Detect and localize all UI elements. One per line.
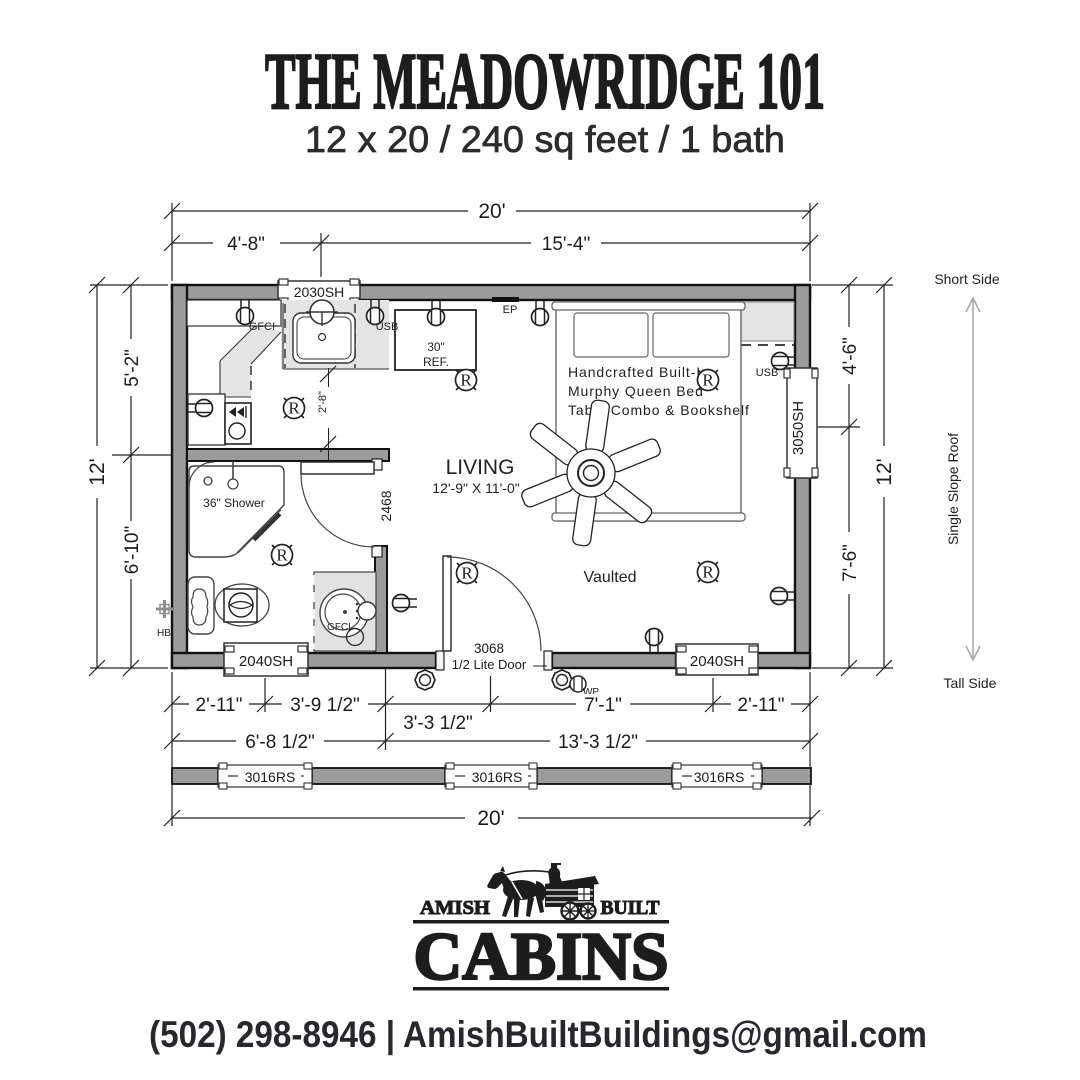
svg-text:3068: 3068 [474,641,504,656]
svg-text:12': 12' [86,458,109,485]
svg-text:HB: HB [157,628,171,639]
svg-text:15'-4": 15'-4" [542,234,590,255]
svg-text:AMISH: AMISH [420,897,490,919]
svg-text:1/2 Lite Door: 1/2 Lite Door [452,657,527,672]
svg-text:7'-1": 7'-1" [584,695,622,716]
svg-text:12 x 20 / 240 sq feet / 1 bath: 12 x 20 / 240 sq feet / 1 bath [305,119,785,160]
svg-text:Short Side: Short Side [934,271,1000,287]
svg-text:7'-6": 7'-6" [840,544,861,582]
svg-text:EP: EP [503,304,518,316]
svg-text:3016RS: 3016RS [472,769,523,785]
svg-text:2'-11": 2'-11" [196,695,243,716]
svg-text:LIVING: LIVING [446,456,515,479]
svg-text:30": 30" [427,340,445,354]
svg-text:2030SH: 2030SH [294,284,345,300]
svg-text:Handcrafted Built-In: Handcrafted Built-In [568,364,710,380]
svg-text:12'-9" X 11'-0": 12'-9" X 11'-0" [432,480,519,496]
svg-text:36" Shower: 36" Shower [203,496,265,510]
svg-text:13'-3 1/2": 13'-3 1/2" [558,732,638,753]
svg-text:3'-9 1/2": 3'-9 1/2" [290,695,360,716]
svg-text:2'-8": 2'-8" [317,391,329,413]
svg-text:Single Slope Roof: Single Slope Roof [945,433,961,545]
svg-text:4'-8": 4'-8" [227,234,265,255]
svg-text:BUILT: BUILT [601,897,661,919]
svg-text:2'-11": 2'-11" [738,695,785,716]
svg-text:20': 20' [477,807,504,830]
svg-text:3'-3 1/2": 3'-3 1/2" [403,713,473,734]
svg-text:USB: USB [756,367,779,379]
svg-text:4'-6": 4'-6" [840,337,861,375]
svg-text:Murphy Queen Bed: Murphy Queen Bed [568,383,704,399]
svg-text:20': 20' [478,200,505,223]
svg-text:Vaulted: Vaulted [583,569,636,586]
svg-text:2040SH: 2040SH [239,653,293,670]
svg-text:6'-10": 6'-10" [122,526,143,574]
svg-text:3016RS: 3016RS [245,769,296,785]
svg-text:3016RS: 3016RS [694,769,745,785]
svg-text:3050SH: 3050SH [790,401,807,455]
svg-text:(502) 298-8946 | AmishBuiltBui: (502) 298-8946 | AmishBuiltBuildings@gma… [149,1014,927,1056]
svg-text:2468: 2468 [378,490,394,521]
svg-text:GFCI: GFCI [249,321,275,333]
svg-text:GFCI: GFCI [327,622,351,633]
svg-text:6'-8 1/2": 6'-8 1/2" [245,732,315,753]
svg-text:REF.: REF. [423,355,449,369]
svg-text:2040SH: 2040SH [690,653,744,670]
svg-text:CABINS: CABINS [414,918,669,994]
svg-text:12': 12' [873,458,896,485]
svg-text:Tall Side: Tall Side [944,675,997,691]
svg-text:THE MEADOWRIDGE 101: THE MEADOWRIDGE 101 [265,36,825,126]
svg-text:5'-2": 5'-2" [122,349,143,387]
